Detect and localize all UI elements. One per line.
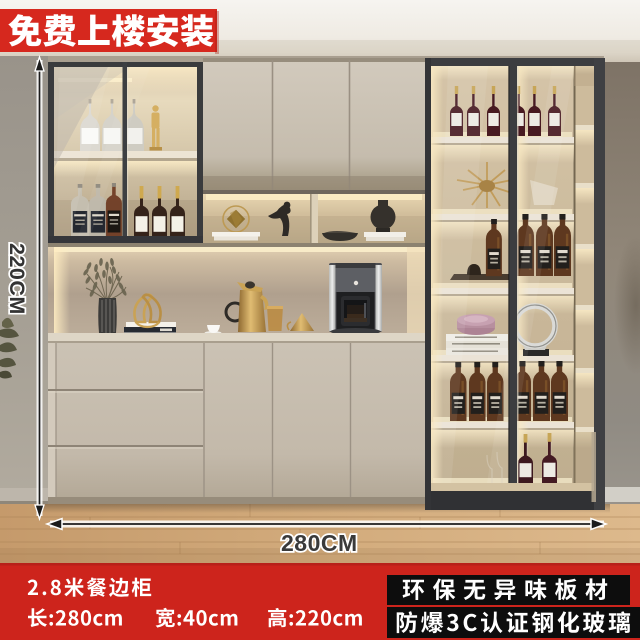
- svg-text:220CM: 220CM: [5, 243, 29, 315]
- svg-text:280CM: 280CM: [281, 530, 358, 556]
